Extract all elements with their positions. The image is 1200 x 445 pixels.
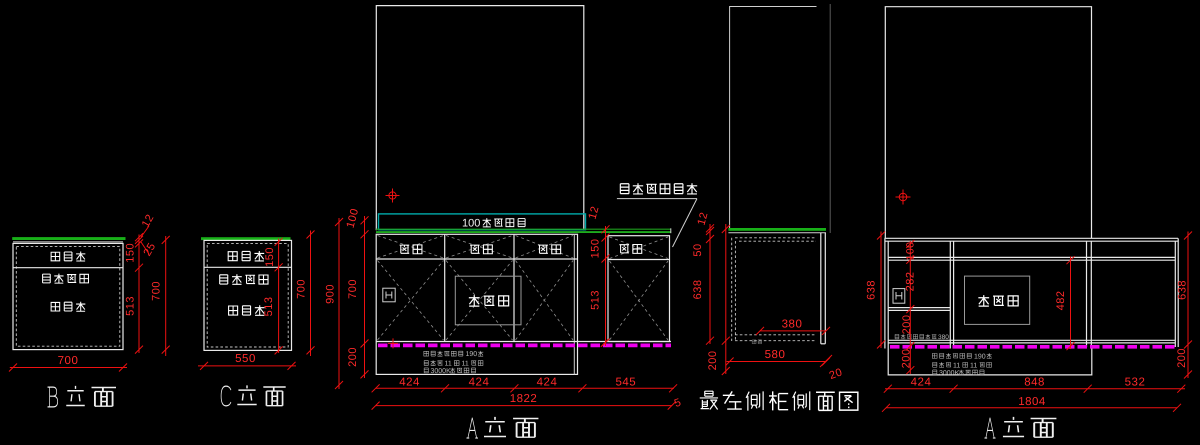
svg-text:482: 482 bbox=[1055, 291, 1067, 311]
svg-text:380: 380 bbox=[938, 334, 949, 341]
svg-text:513: 513 bbox=[124, 296, 136, 316]
svg-text:424: 424 bbox=[537, 376, 558, 388]
svg-text:190: 190 bbox=[466, 351, 478, 358]
svg-text:550: 550 bbox=[235, 353, 256, 365]
svg-text:100: 100 bbox=[462, 218, 480, 230]
svg-text:1804: 1804 bbox=[1018, 396, 1046, 408]
svg-text:638: 638 bbox=[1177, 280, 1189, 300]
svg-text:11: 11 bbox=[970, 362, 977, 369]
svg-text:700: 700 bbox=[151, 281, 163, 301]
svg-text:11: 11 bbox=[462, 361, 469, 368]
svg-text:11: 11 bbox=[445, 361, 452, 368]
svg-text:3000K: 3000K bbox=[431, 368, 452, 375]
svg-text:580: 580 bbox=[765, 349, 786, 361]
svg-text:545: 545 bbox=[615, 376, 636, 388]
svg-text:424: 424 bbox=[911, 377, 932, 389]
svg-text:200: 200 bbox=[707, 351, 719, 371]
svg-text:424: 424 bbox=[399, 376, 420, 388]
svg-text:513: 513 bbox=[263, 297, 275, 317]
svg-text:150: 150 bbox=[264, 247, 276, 267]
svg-text:848: 848 bbox=[1024, 377, 1045, 389]
svg-text:638: 638 bbox=[866, 280, 878, 300]
svg-text:200: 200 bbox=[901, 315, 913, 335]
svg-text:424: 424 bbox=[469, 376, 490, 388]
svg-text:900: 900 bbox=[325, 284, 337, 304]
svg-text:282: 282 bbox=[905, 272, 917, 292]
svg-text:638: 638 bbox=[692, 280, 704, 300]
svg-text:700: 700 bbox=[347, 279, 359, 299]
svg-text:200: 200 bbox=[1176, 348, 1188, 368]
svg-text:11: 11 bbox=[953, 362, 960, 369]
svg-text:380: 380 bbox=[782, 318, 803, 330]
svg-text:700: 700 bbox=[58, 355, 79, 367]
svg-text:1822: 1822 bbox=[510, 393, 538, 405]
svg-text:700: 700 bbox=[296, 279, 308, 299]
svg-text:190: 190 bbox=[974, 353, 986, 360]
svg-text:100: 100 bbox=[905, 241, 917, 260]
svg-text:200: 200 bbox=[347, 347, 359, 367]
svg-text:3000K: 3000K bbox=[939, 370, 960, 377]
svg-text:50: 50 bbox=[692, 243, 704, 256]
svg-text:150: 150 bbox=[590, 239, 602, 259]
svg-text:532: 532 bbox=[1125, 377, 1146, 389]
svg-text:513: 513 bbox=[590, 290, 602, 310]
svg-text:200: 200 bbox=[901, 349, 913, 369]
svg-text:150: 150 bbox=[124, 243, 136, 263]
